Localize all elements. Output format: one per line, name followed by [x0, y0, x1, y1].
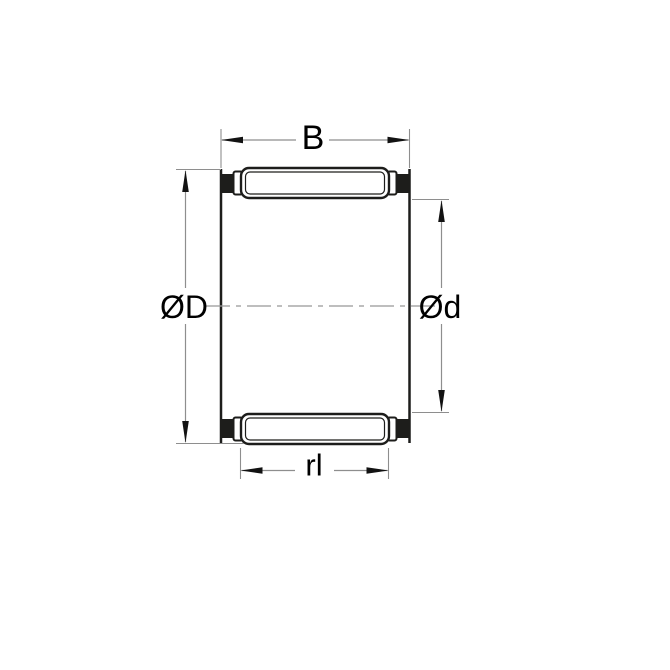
dim-od-arrow-down-icon	[182, 421, 189, 443]
dimension-inner-diameter-Od: Ød	[412, 200, 461, 413]
dim-b-arrow-left-icon	[221, 137, 243, 144]
bearing-drawing-canvas: B ØD Ød	[0, 0, 670, 670]
needle-roller-top	[241, 168, 389, 198]
dimension-roller-length-rl: rl	[241, 448, 389, 483]
dim-rl-arrow-right-icon	[367, 467, 389, 474]
dimension-width-B: B	[221, 119, 410, 168]
dim-b-label: B	[302, 119, 325, 157]
needle-roller-bottom	[241, 414, 389, 444]
dim-id-label: Ød	[419, 289, 462, 325]
dim-od-arrow-up-icon	[182, 170, 189, 192]
dim-od-label: ØD	[160, 289, 208, 325]
needle-bearing-cross-section-diagram: B ØD Ød	[0, 0, 670, 670]
dimension-outer-diameter-OD: ØD	[160, 170, 244, 444]
dim-rl-label: rl	[305, 448, 322, 483]
dim-id-arrow-up-icon	[438, 200, 445, 222]
dim-b-arrow-right-icon	[388, 137, 410, 144]
dim-rl-arrow-left-icon	[241, 467, 263, 474]
dim-id-arrow-down-icon	[438, 390, 445, 412]
